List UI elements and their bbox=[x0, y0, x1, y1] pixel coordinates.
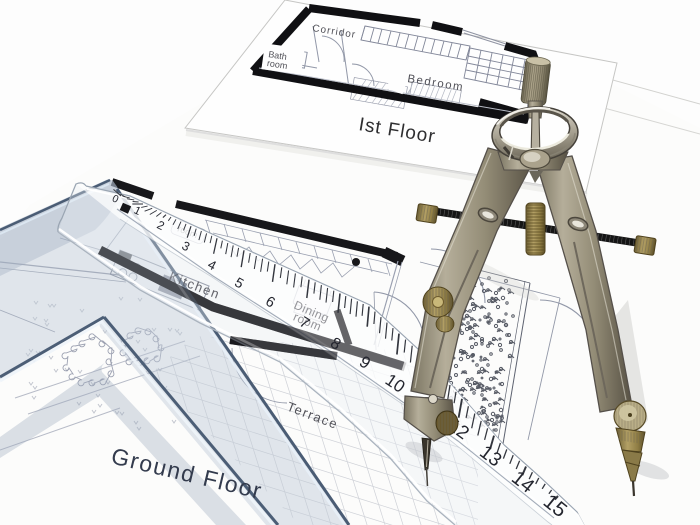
svg-text:Bathroom: Bathroom bbox=[266, 49, 289, 71]
